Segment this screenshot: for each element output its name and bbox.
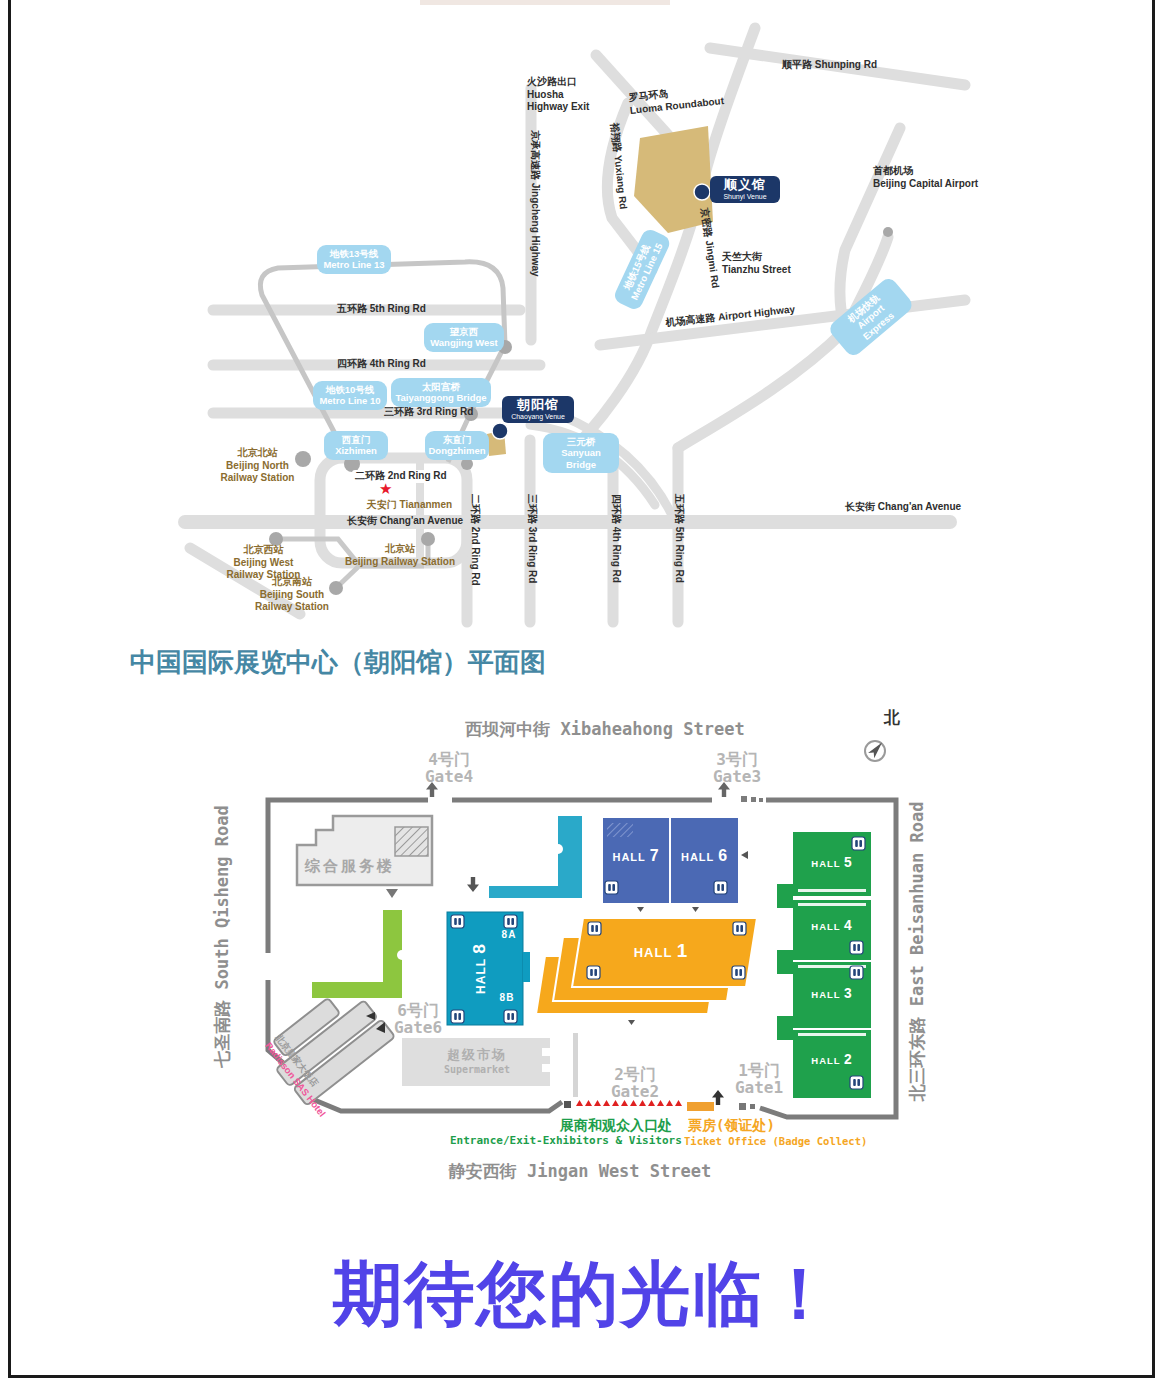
label-tiananmen: 天安门 Tiananmen: [352, 499, 467, 512]
facility-icon: [850, 966, 863, 979]
facility-icon: [733, 922, 746, 935]
tiananmen-star-icon: ★: [379, 481, 392, 496]
hall-8a-label: 8A: [496, 929, 522, 940]
facility-icon: [850, 1076, 863, 1089]
label-3rd-ring-v: 三环路 3rd Ring Rd: [526, 494, 539, 583]
gate1-mark: [750, 1104, 755, 1109]
badge-chaoyang-venue: 朝阳馆 Chaoyang Venue: [502, 396, 574, 423]
teal-building-notch: [553, 844, 563, 854]
label-2nd-ring-v: 二环路 2nd Ring Rd: [469, 494, 482, 586]
label-5th-ring: 五环路 5th Ring Rd: [337, 303, 426, 316]
label-street-left: 七圣南路 South Qisheng Road: [211, 787, 234, 1087]
welcome-message: 期待您的光临！: [0, 1248, 1169, 1342]
label-gate6: 6号门 Gate6: [388, 1002, 448, 1037]
label-capital-airport: 首都机场 Beijing Capital Airport: [873, 165, 978, 190]
badge-shunyi-venue: 顺义馆 Shunyi Venue: [710, 176, 780, 203]
hall-4-label: HALL 4: [793, 918, 871, 933]
chaoyang-venue-zh: 朝阳馆: [505, 398, 571, 413]
label-street-top: 西坝河中街 Xibaheahong Street: [440, 718, 770, 741]
hall-8-label: HALL 8: [469, 889, 490, 1049]
label-changan-avenue: 长安街 Chang'an Avenue: [347, 515, 463, 528]
hall-6-label: HALL 6: [671, 847, 738, 865]
facility-icon: [504, 915, 517, 928]
hall-1-name: HALL: [634, 945, 672, 960]
label-beijing-north-station: 北京北站 Beijing North Railway Station: [210, 447, 305, 485]
hall-5-label: HALL 5: [793, 855, 871, 870]
label-street-bottom: 静安西街 Jingan West Street: [420, 1160, 740, 1183]
label-beijing-station: 北京站 Beijing Railway Station: [340, 543, 460, 568]
gate1-mark: [739, 1103, 746, 1110]
cutoff-road-top: [420, 0, 670, 5]
arrow-down-icon: [637, 907, 644, 912]
hall-8-num: 8: [469, 943, 489, 954]
badge-wangjing-west: 望京西 Wangjing West: [424, 323, 504, 352]
facility-icon: [605, 881, 618, 894]
hall-3-name: HALL: [811, 989, 840, 1000]
label-huosha-exit: 火沙路出口 Huosha Highway Exit: [527, 76, 627, 114]
label-ticket-en: Ticket Office (Badge Collect): [684, 1135, 867, 1147]
facility-icon: [451, 915, 464, 928]
supermarket-en: Supermarket: [404, 1064, 550, 1075]
label-entrance-zh: 展商和观众入口处: [560, 1117, 672, 1135]
lime-l-building: [312, 910, 402, 998]
facility-icon: [504, 1010, 517, 1023]
label-service-building: 综合服务楼: [305, 857, 395, 876]
badge-xizhimen: 西直门 Xizhimen: [324, 431, 388, 460]
badge-metro-line-10: 地铁10号线 Metro Line 10: [313, 381, 387, 410]
label-gate1: 1号门 Gate1: [730, 1062, 788, 1097]
label-street-right: 北三环东路 East Beisanhuan Road: [906, 802, 929, 1102]
hall-3-label: HALL 3: [793, 986, 871, 1001]
hall-1-num: 1: [677, 940, 688, 961]
hall-8-name: HALL: [474, 958, 488, 994]
label-gate4: 4号门 Gate4: [420, 751, 478, 786]
shunyi-venue-zh: 顺义馆: [713, 178, 777, 193]
entrance-mark: [564, 1101, 571, 1108]
chaoyang-venue-en: Chaoyang Venue: [505, 413, 571, 421]
perimeter-dashes: [741, 796, 763, 802]
hall-5-num: 5: [844, 855, 853, 870]
facility-icon: [852, 837, 865, 850]
ticket-office-bar: [687, 1102, 714, 1111]
hall-7-hatch: [607, 823, 633, 837]
label-ticket-zh: 票房(领证处): [688, 1117, 775, 1135]
page: 顺平路 Shunping Rd 火沙路出口 Huosha Highway Exi…: [0, 0, 1169, 1379]
label-2nd-ring: 二环路 2nd Ring Rd: [352, 470, 450, 483]
facility-icon: [451, 1010, 464, 1023]
shunyi-venue-en: Shunyi Venue: [713, 193, 777, 201]
label-tianzhu-street: 天竺大街 Tianzhu Street: [722, 251, 791, 276]
hall-4-num: 4: [844, 918, 853, 933]
label-beijing-south-station: 北京南站 Beijing South Railway Station: [242, 576, 342, 614]
plan-title: 中国国际展览中心（朝阳馆）平面图: [130, 645, 546, 680]
label-3rd-ring: 三环路 3rd Ring Rd: [384, 406, 473, 419]
service-building-hatch: [395, 827, 428, 856]
hall-7-num: 7: [650, 847, 660, 864]
label-gate3: 3号门 Gate3: [708, 751, 766, 786]
hall-7-label: HALL 7: [603, 847, 669, 865]
hall-6-name: HALL: [681, 851, 714, 863]
facility-icon: [850, 941, 863, 954]
facility-icon: [732, 966, 745, 979]
facility-icon: [587, 966, 600, 979]
badge-sanyuan-bridge: 三元桥 Sanyuan Bridge: [543, 433, 619, 473]
hall-1-label: HALL 1: [581, 940, 741, 962]
label-jingcheng-highway: 京承高速路 Jingcheng Highway: [529, 130, 542, 277]
arrow-down-icon: [692, 907, 699, 912]
teal-l-building: [489, 816, 582, 898]
hall-3-num: 3: [844, 986, 853, 1001]
hall-8-tab: [523, 952, 530, 982]
inner-lane: [573, 1033, 578, 1097]
supermarket-zh: 超级市场: [404, 1046, 550, 1064]
arrow-left-icon: [741, 851, 748, 859]
label-shunping-rd: 顺平路 Shunping Rd: [782, 59, 877, 72]
label-supermarket: 超级市场 Supermarket: [404, 1046, 550, 1075]
label-entrance-en: Entrance/Exit-Exhibitors & Visitors: [450, 1134, 682, 1147]
badge-taiyanggong-bridge: 太阳宫桥 Taiyanggong Bridge: [391, 378, 491, 407]
label-gate2: 2号门 Gate2: [605, 1066, 665, 1101]
service-arrow-icon: [386, 889, 398, 898]
label-4th-ring: 四环路 4th Ring Rd: [337, 358, 426, 371]
facility-icon: [714, 881, 727, 894]
hall-6-num: 6: [718, 847, 728, 864]
badge-metro-line-13: 地铁13号线 Metro Line 13: [317, 245, 391, 274]
hall-8b-label: 8B: [494, 992, 520, 1003]
facility-icon: [588, 922, 601, 935]
label-changan-avenue-east: 长安街 Chang'an Avenue: [845, 501, 961, 514]
lime-building-notch: [397, 950, 407, 960]
label-5th-ring-v: 五环路 5th Ring Rd: [673, 494, 686, 583]
badge-dongzhimen: 东直门 Dongzhimen: [425, 431, 489, 460]
hall-1-stack: [536, 918, 757, 1014]
arrow-down-icon: [628, 1020, 635, 1025]
label-4th-ring-v: 四环路 4th Ring Rd: [610, 494, 623, 583]
hall-7-name: HALL: [612, 851, 645, 863]
hall-2-name: HALL: [811, 1055, 840, 1066]
hall-2-num: 2: [844, 1052, 853, 1067]
hall-2-label: HALL 2: [793, 1052, 871, 1067]
label-north: 北: [884, 708, 900, 729]
hall-5-name: HALL: [811, 858, 840, 869]
hall-4-name: HALL: [811, 921, 840, 932]
